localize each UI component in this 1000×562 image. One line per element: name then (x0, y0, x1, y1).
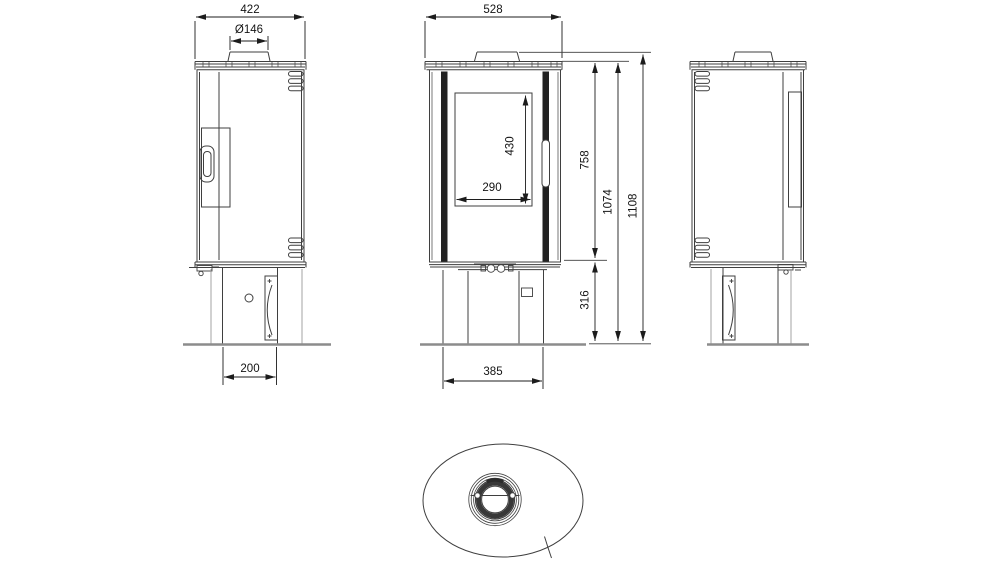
pedestal-side (711, 268, 791, 344)
vent-slots-top (695, 72, 710, 91)
door-handle-grip (204, 152, 212, 177)
top-view (423, 444, 583, 558)
pedestal-hole (245, 294, 253, 302)
dim-label-top-depth: 422 (240, 4, 259, 16)
dim-label-top-width: 528 (483, 4, 502, 16)
flue-collar-icon (228, 52, 270, 61)
stove-body-side (690, 70, 806, 274)
dim-label-base-depth: 200 (240, 363, 259, 375)
cover-panel-arc (267, 285, 272, 335)
screw-icon (475, 493, 480, 498)
dim-label-base-height: 316 (580, 290, 592, 309)
flue-seam-mark (487, 480, 503, 482)
vent-slots-top (289, 72, 304, 91)
top-plate-outline (423, 444, 583, 557)
leader-line (545, 537, 552, 559)
vent-slots-bottom (289, 238, 304, 257)
stove-drawing: 422 Ø146 (0, 0, 1000, 562)
technical-drawing-canvas: 422 Ø146 (0, 0, 1000, 562)
dimension-body-height: 758 (580, 63, 596, 258)
flue-collar-icon (733, 52, 773, 61)
dim-label-body-height: 758 (580, 150, 592, 169)
dim-label-flue-diameter: Ø146 (235, 24, 263, 36)
dimension-base-height: 316 (580, 263, 596, 342)
door-frame-side (202, 128, 231, 207)
air-intake-detail (522, 288, 533, 297)
dimension-top-width: 528 (425, 4, 562, 58)
dim-label-height-to-top-plate: 1074 (603, 189, 615, 215)
dimension-base-width: 385 (443, 347, 543, 389)
dimension-flue-diameter: Ø146 (230, 24, 268, 50)
extension-lines (230, 36, 268, 50)
dim-label-glass-height: 430 (505, 136, 517, 155)
top-plate (195, 62, 306, 70)
flue-collar-icon (475, 52, 520, 61)
pedestal-front (443, 270, 544, 344)
damper-control (474, 264, 516, 272)
dimension-total-height: 1108 (628, 55, 644, 342)
stove-body-side (189, 70, 306, 276)
pedestal-side (211, 268, 302, 344)
dimension-height-to-top-plate: 1074 (603, 63, 619, 341)
door-frame-left (441, 72, 448, 263)
screw-icon (510, 493, 515, 498)
door-handle (542, 140, 550, 187)
dim-label-total-height: 1108 (628, 194, 640, 219)
top-plate (425, 62, 562, 70)
top-plate (690, 62, 806, 70)
hinge-side-panel (789, 92, 802, 207)
side-view-left: 422 Ø146 (183, 4, 331, 385)
flue-outlet (469, 473, 521, 525)
vent-slots-bottom (695, 238, 710, 257)
dim-label-base-width: 385 (483, 366, 502, 378)
dimension-glass-height: 430 (505, 96, 526, 204)
cover-panel-arc (729, 285, 734, 335)
dim-label-glass-width: 290 (482, 182, 501, 194)
dimension-glass-width: 290 (457, 182, 531, 200)
aux-lines (211, 269, 302, 344)
stove-body-front (429, 70, 561, 272)
front-view: 528 (420, 4, 651, 389)
dimension-base-depth: 200 (223, 347, 277, 385)
latch-detail (778, 265, 801, 275)
side-view-right (690, 52, 809, 345)
flue-ring (479, 483, 512, 516)
